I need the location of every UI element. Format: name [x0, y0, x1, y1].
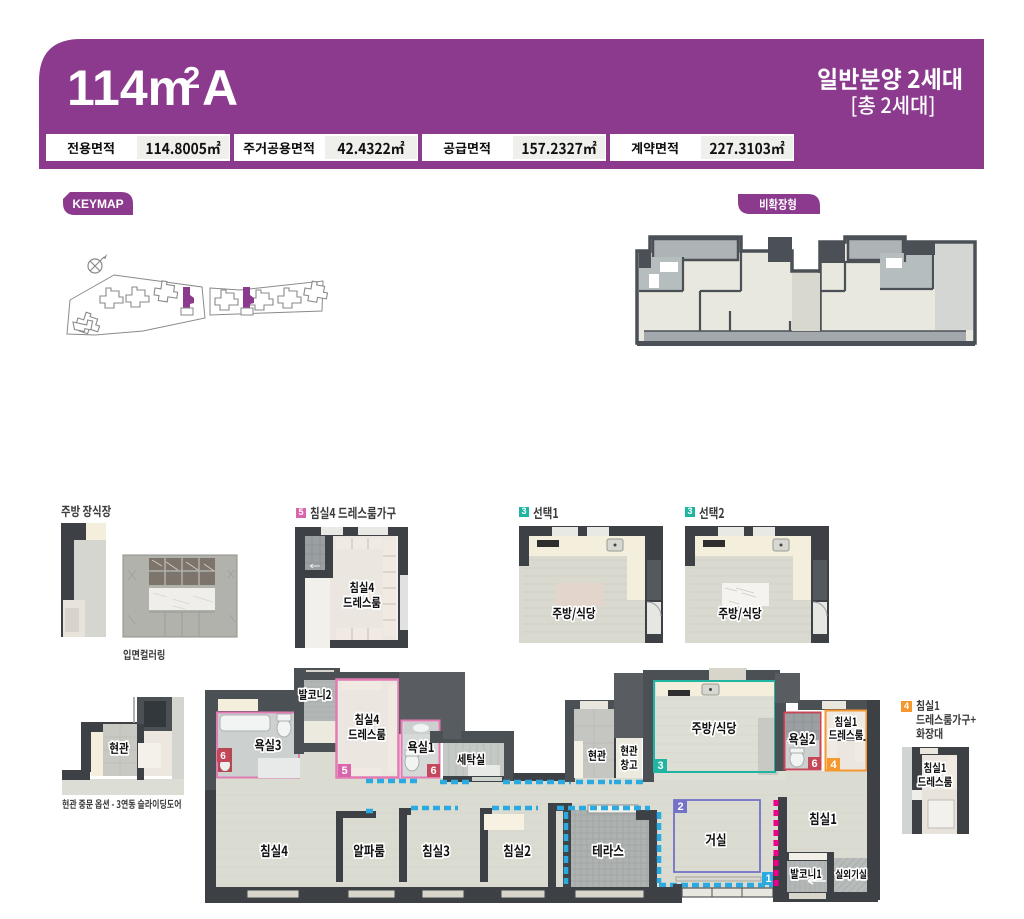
svg-text:3: 3 — [687, 506, 692, 516]
svg-text:1: 1 — [765, 873, 771, 885]
svg-text:114m: 114m — [67, 60, 192, 116]
svg-text:2: 2 — [183, 60, 200, 95]
svg-text:A: A — [202, 60, 238, 116]
svg-text:6: 6 — [430, 765, 436, 777]
svg-text:2: 2 — [677, 801, 683, 813]
svg-text:6: 6 — [811, 758, 817, 770]
svg-text:4: 4 — [904, 701, 909, 711]
svg-text:5: 5 — [341, 765, 347, 777]
svg-text:3: 3 — [657, 760, 663, 772]
svg-text:4: 4 — [830, 759, 837, 771]
svg-text:6: 6 — [220, 751, 226, 762]
svg-text:3: 3 — [521, 506, 526, 516]
svg-text:KEYMAP: KEYMAP — [72, 197, 123, 211]
svg-text:5: 5 — [298, 507, 303, 517]
